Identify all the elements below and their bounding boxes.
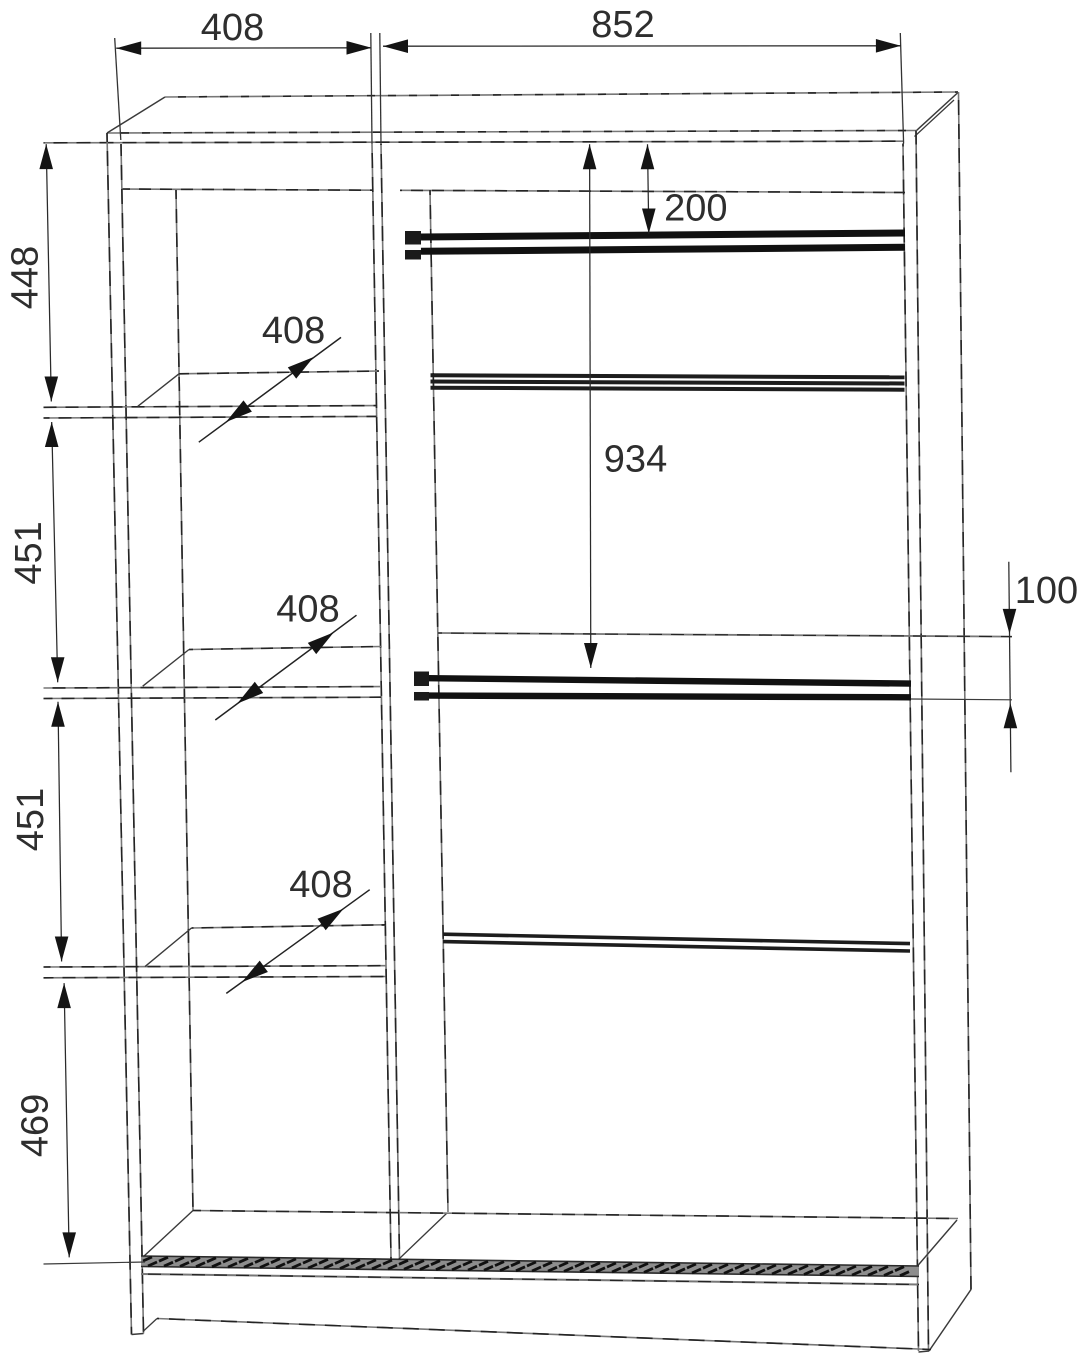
svg-text:408: 408 — [262, 310, 325, 352]
svg-text:934: 934 — [604, 439, 667, 481]
svg-text:448: 448 — [5, 246, 47, 309]
svg-text:469: 469 — [14, 1094, 56, 1157]
svg-text:408: 408 — [201, 7, 264, 49]
svg-text:100: 100 — [1015, 570, 1078, 612]
svg-text:408: 408 — [276, 589, 339, 631]
svg-text:852: 852 — [591, 4, 654, 46]
svg-text:200: 200 — [664, 188, 727, 230]
svg-text:451: 451 — [8, 521, 50, 584]
svg-text:408: 408 — [289, 864, 352, 906]
svg-text:451: 451 — [10, 788, 52, 851]
